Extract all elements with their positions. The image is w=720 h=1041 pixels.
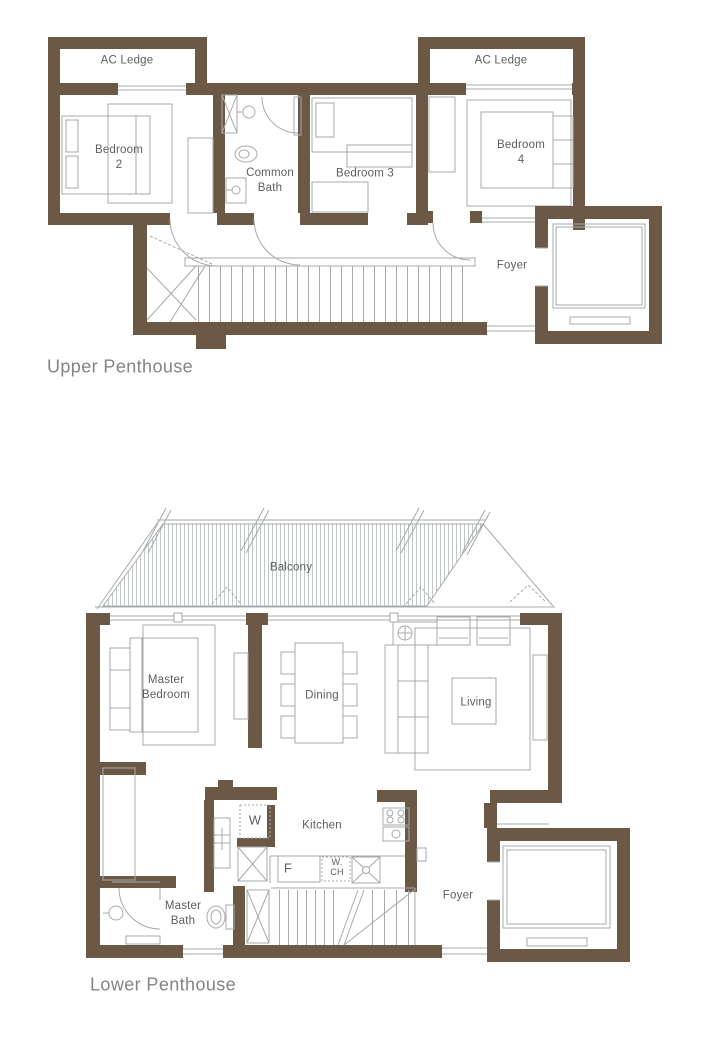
room-label-common-bath: Common Bath <box>246 166 294 196</box>
room-label-living: Living <box>460 696 491 711</box>
room-label-master-bath-line2: Bath <box>165 914 201 929</box>
room-label-bedroom-3: Bedroom 3 <box>336 167 394 182</box>
room-label-bedroom-2-line2: 2 <box>95 158 143 173</box>
labels-layer: AC Ledge AC Ledge Bedroom 2 Common Bath … <box>0 0 720 1041</box>
room-label-bedroom-4-line2: 4 <box>497 153 545 168</box>
room-label-master-bath-line1: Master <box>165 899 201 914</box>
room-label-bedroom-2-line1: Bedroom <box>95 143 143 158</box>
room-label-kitchen: Kitchen <box>302 819 342 834</box>
room-label-master-bedroom-line1: Master <box>142 673 190 688</box>
room-label-dining: Dining <box>305 689 339 704</box>
room-label-bedroom-4-line1: Bedroom <box>497 138 545 153</box>
room-label-ac-ledge-right: AC Ledge <box>475 54 528 69</box>
appliance-label-wch-line2: CH <box>330 868 343 878</box>
appliance-label-washer: W <box>249 813 261 830</box>
room-label-master-bedroom: Master Bedroom <box>142 673 190 703</box>
room-label-master-bath: Master Bath <box>165 899 201 929</box>
room-label-common-bath-line1: Common <box>246 166 294 181</box>
room-label-bedroom-2: Bedroom 2 <box>95 143 143 173</box>
room-label-foyer-upper: Foyer <box>497 259 527 274</box>
lower-floor-title: Lower Penthouse <box>90 975 236 996</box>
room-label-common-bath-line2: Bath <box>246 181 294 196</box>
floorplan-page: AC Ledge AC Ledge Bedroom 2 Common Bath … <box>0 0 720 1041</box>
upper-floor-title: Upper Penthouse <box>47 357 193 378</box>
room-label-foyer-lower: Foyer <box>443 889 473 904</box>
room-label-balcony: Balcony <box>270 561 312 576</box>
appliance-label-wch: W. CH <box>330 858 343 878</box>
appliance-label-fridge: F <box>284 861 292 878</box>
room-label-ac-ledge-left: AC Ledge <box>101 54 154 69</box>
room-label-bedroom-4: Bedroom 4 <box>497 138 545 168</box>
room-label-master-bedroom-line2: Bedroom <box>142 688 190 703</box>
